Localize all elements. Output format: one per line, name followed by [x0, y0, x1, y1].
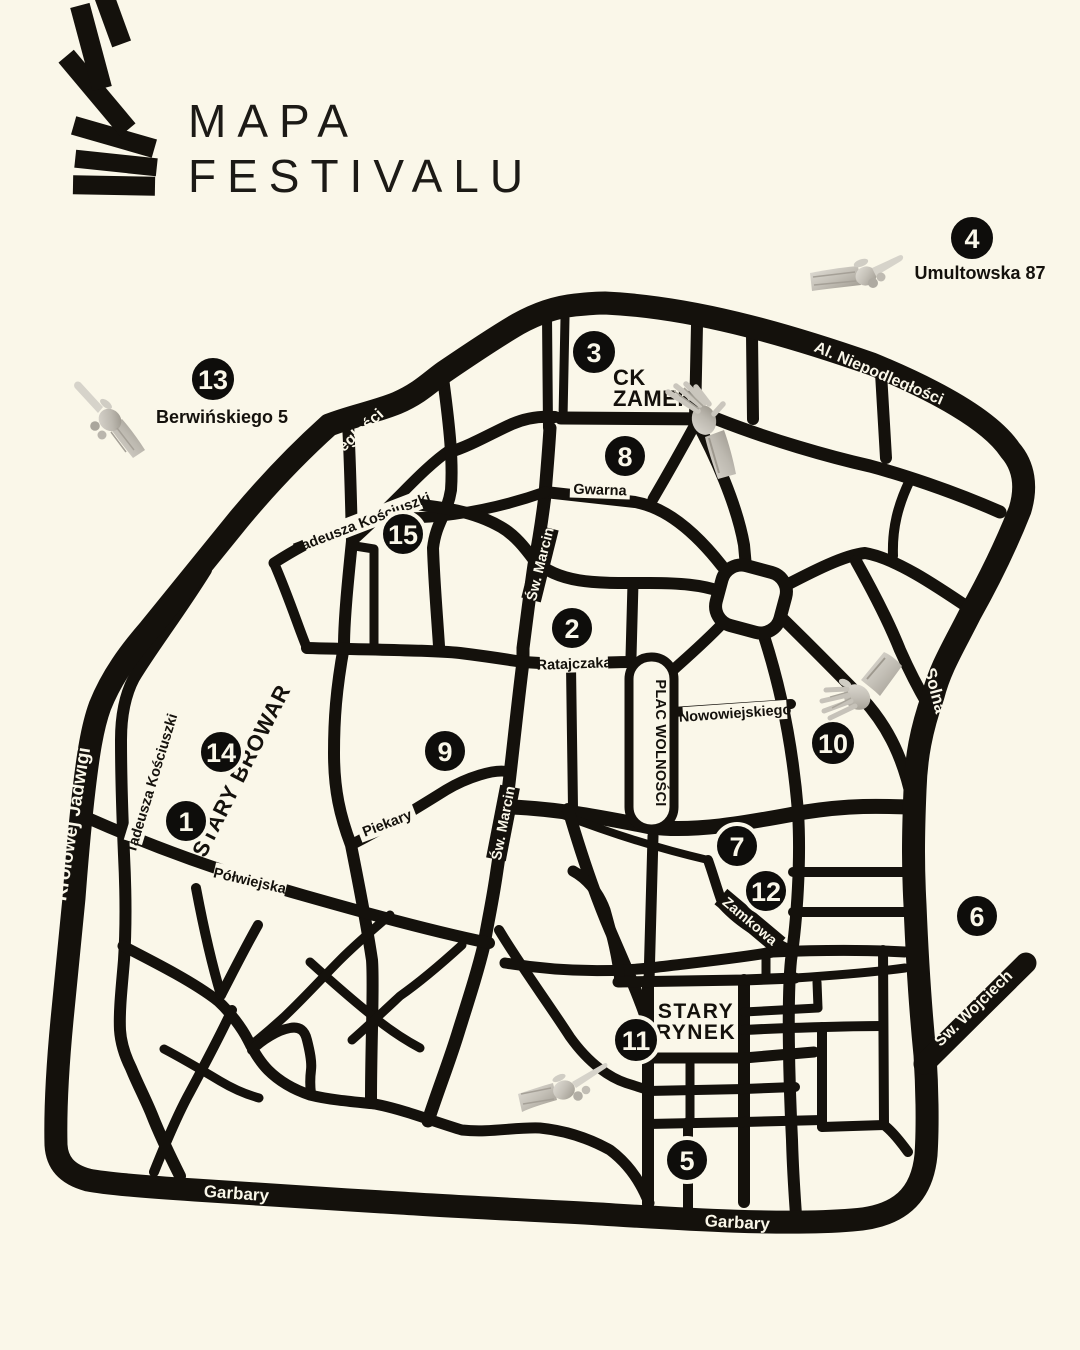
svg-text:15: 15 [388, 520, 418, 550]
svg-text:8: 8 [617, 442, 632, 472]
svg-text:13: 13 [198, 365, 228, 395]
svg-text:4: 4 [964, 224, 979, 254]
svg-text:Berwińskiego 5: Berwińskiego 5 [156, 407, 288, 427]
svg-text:1: 1 [178, 807, 193, 837]
svg-text:5: 5 [679, 1146, 694, 1176]
svg-text:7: 7 [729, 832, 744, 862]
svg-text:10: 10 [818, 729, 848, 759]
svg-text:2: 2 [564, 614, 579, 644]
svg-text:Gwarna: Gwarna [573, 482, 628, 500]
svg-text:Garbary: Garbary [704, 1211, 771, 1233]
svg-text:12: 12 [751, 877, 781, 907]
svg-text:9: 9 [437, 737, 452, 767]
svg-text:STARY: STARY [658, 1000, 734, 1023]
svg-text:RYNEK: RYNEK [656, 1021, 736, 1044]
svg-text:3: 3 [586, 338, 601, 368]
svg-text:PLAC WOLNOŚCI: PLAC WOLNOŚCI [652, 679, 670, 806]
svg-text:MAPA: MAPA [188, 95, 359, 147]
svg-text:11: 11 [622, 1026, 651, 1056]
svg-text:6: 6 [969, 902, 984, 932]
svg-text:Ratajczaka: Ratajczaka [536, 655, 612, 674]
svg-text:Umultowska 87: Umultowska 87 [914, 263, 1045, 283]
svg-text:FESTIVALU: FESTIVALU [188, 150, 534, 202]
svg-text:14: 14 [206, 738, 236, 768]
